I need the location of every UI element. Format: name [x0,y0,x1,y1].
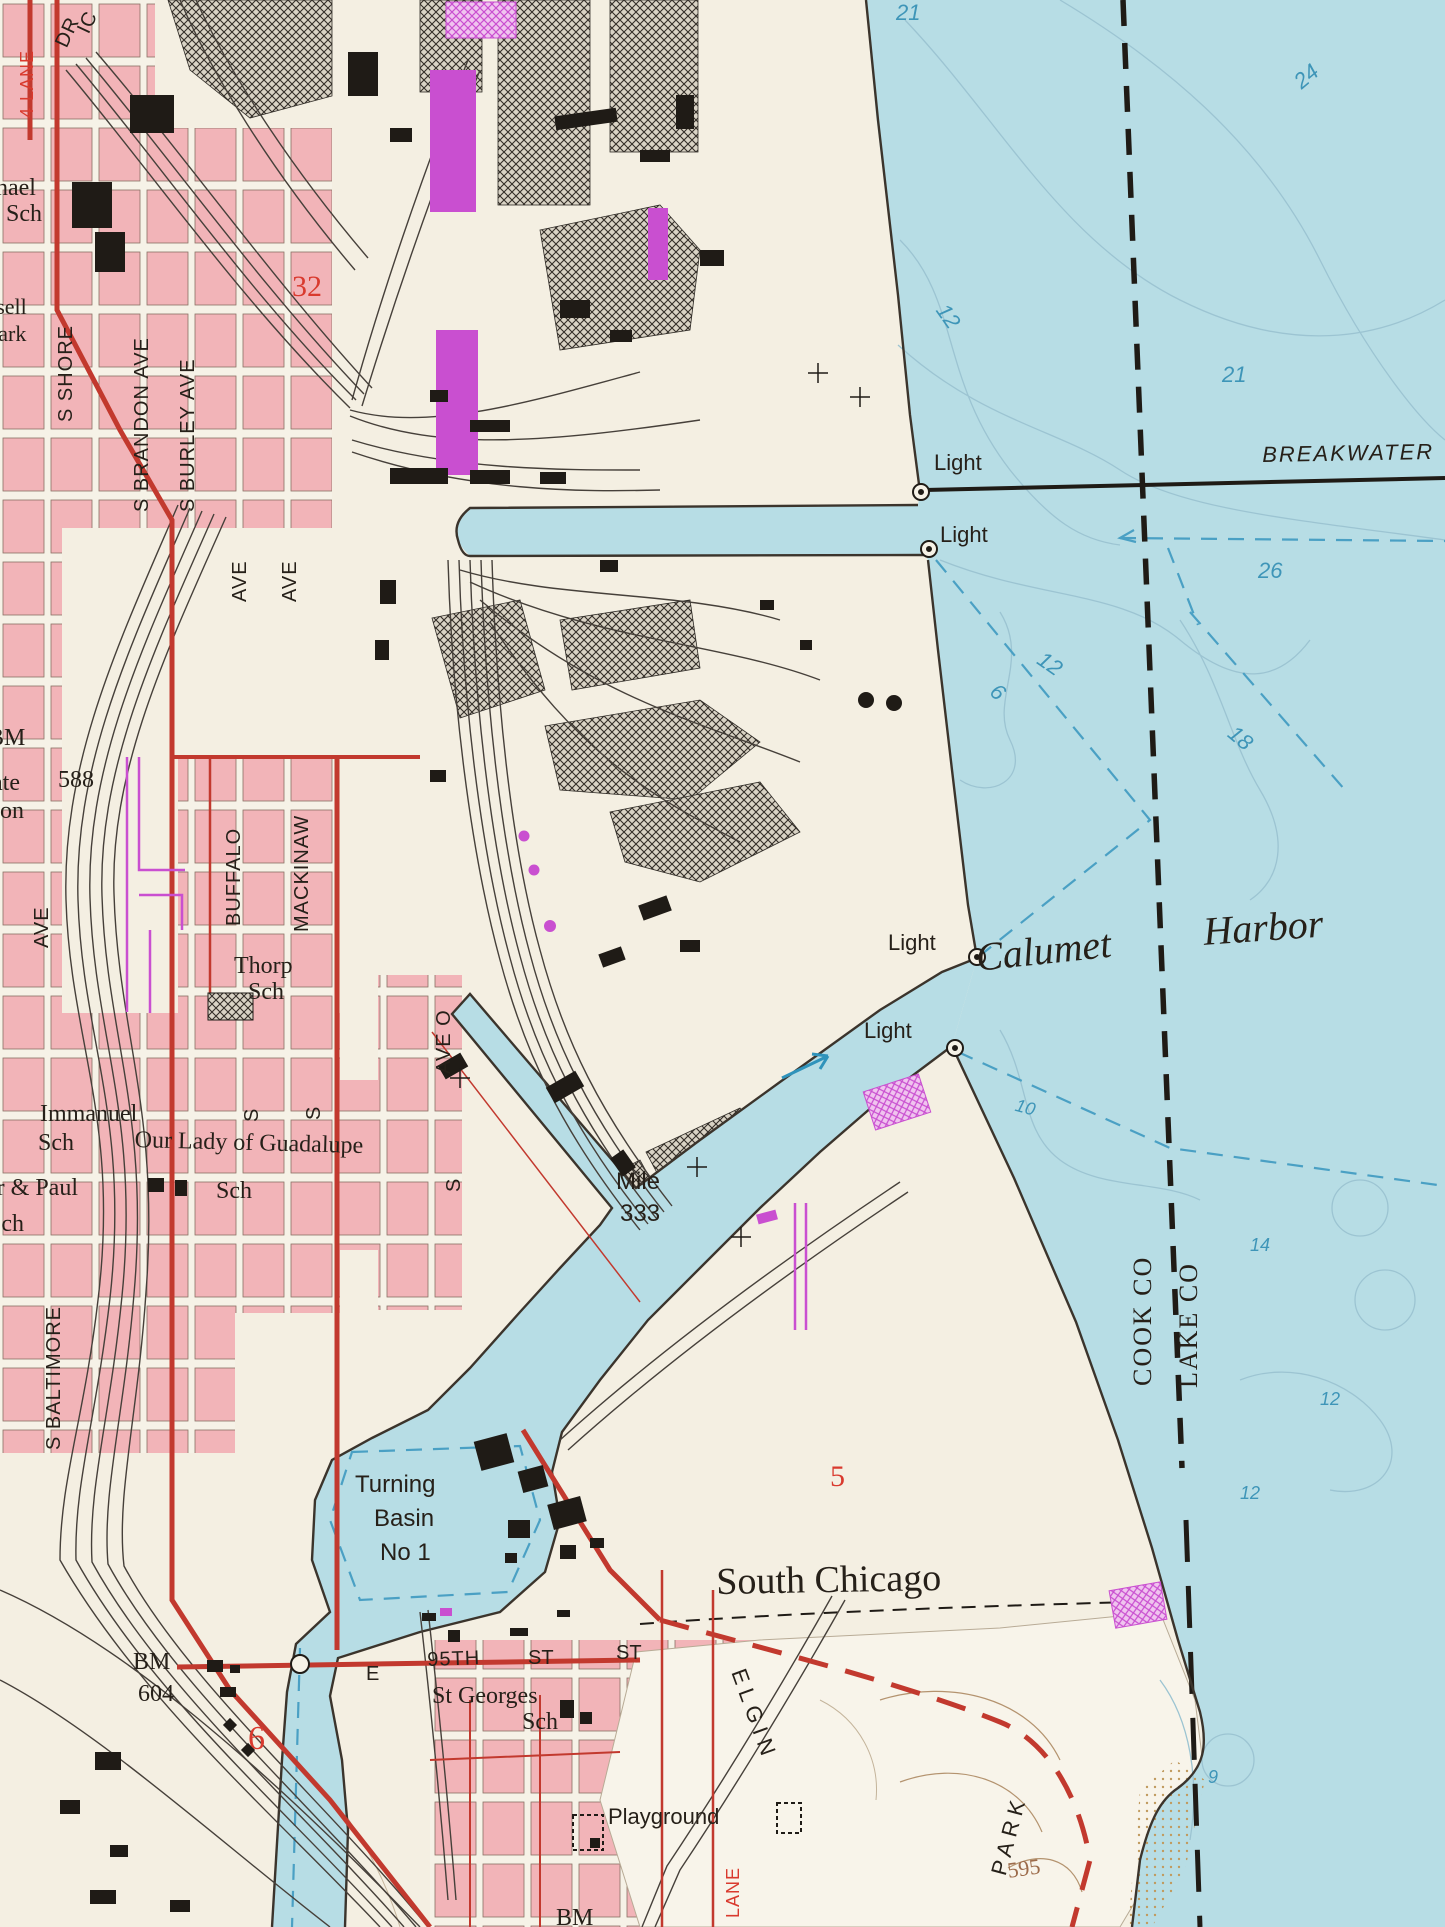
map-label-s-burley-ave: S BURLEY AVE [178,358,198,512]
map-label-depth-10: 10 [1013,1096,1037,1119]
map-label-calumet: Calumet [974,924,1113,978]
map-label-bm-588-bm: BM [0,726,25,750]
map-label-immanuel-sch: Sch [38,1131,74,1155]
topographic-map: 4 LANEDRICS SHORES BRANDON AVES BURLEY A… [0,0,1445,1927]
map-label-e-95th: 95TH [427,1648,481,1670]
map-label-s-1: S [444,1179,464,1192]
map-label-bm-bottom: BM [556,1906,593,1927]
map-label-st-georges: St Georges [432,1684,538,1708]
map-label-e-95th-e: E [366,1664,379,1684]
map-label-light-2: Light [940,524,988,546]
map-label-st-georges-sch: Sch [522,1710,558,1734]
map-label-guadalupe: Our Lady of Guadalupe [134,1128,363,1158]
map-label-depth-6: 6 [986,680,1010,705]
map-label-light-1: Light [934,452,982,474]
map-label-depth-21b: 21 [1222,364,1246,386]
map-label-elev-595: 595 [1006,1855,1042,1881]
map-label-depth-12d: 12 [1240,1484,1260,1502]
map-label-guadalupe-sch: Sch [216,1179,252,1203]
map-label-russell-park: Park [0,323,26,345]
map-label-ave-1: AVE [230,560,250,602]
map-label-ave-3: AVE [32,906,52,948]
map-label-four-lane: 4 LANE [18,50,36,118]
map-label-lake-co: LAKE CO [1176,1262,1202,1388]
map-label-bm-604-bm: BM [133,1650,170,1674]
map-label-depth-26: 26 [1258,560,1282,582]
map-label-thorp-sch: Sch [248,980,284,1004]
map-labels: 4 LANEDRICS SHORES BRANDON AVES BURLEY A… [0,0,1445,1927]
map-label-playground: Playground [608,1806,719,1828]
map-label-light-3: Light [888,932,936,954]
map-label-thorp: Thorp [234,954,293,978]
map-label-bm-588: 588 [58,768,94,792]
map-label-depth-18: 18 [1224,722,1257,755]
map-label-michael-sch-2: Sch [6,202,42,226]
map-label-sec-6: 6 [248,1722,265,1756]
map-label-peter-paul: er & Paul [0,1176,78,1200]
map-label-ate: ate [0,771,20,795]
map-label-mile-1: Mile [616,1170,660,1194]
map-label-sec-5: 5 [830,1462,845,1492]
map-label-depth-21a: 21 [896,2,920,24]
map-label-s-brandon-ave: S BRANDON AVE [132,337,152,512]
map-label-s-2: S [242,1109,262,1122]
map-label-s-baltimore: S BALTIMORE [44,1306,64,1450]
map-label-depth-14: 14 [1250,1236,1270,1254]
map-label-peter-paul-sch: Sch [0,1212,24,1236]
map-label-turning-1: Turning [355,1473,435,1497]
map-label-bm-604: 604 [138,1682,174,1706]
map-label-depth-12a: 12 [932,300,964,333]
map-label-elgin: ELGIN [727,1666,781,1764]
map-label-michael-sch-1: nael [0,176,36,200]
map-label-e-95th-st: ST [528,1648,554,1668]
map-label-depth-9: 9 [1208,1768,1218,1786]
map-label-s-shore: S SHORE [56,325,76,422]
map-label-depth-24: 24 [1290,60,1323,93]
map-label-depth-12c: 12 [1320,1390,1340,1408]
map-label-turning-3: No 1 [380,1541,431,1565]
map-label-cook-co: COOK CO [1130,1256,1156,1386]
map-label-ave-o: AVE O [434,1009,454,1074]
map-label-s-3: S [304,1107,324,1120]
map-label-harbor: Harbor [1202,904,1325,952]
map-label-immanuel: Immanuel [40,1102,137,1126]
map-label-south-chicago: South Chicago [716,1559,941,1601]
map-label-light-4: Light [864,1020,912,1042]
map-label-buffalo: BUFFALO [224,828,244,926]
map-label-russell: Russell [0,296,27,318]
map-label-breakwater: BREAKWATER [1262,441,1434,466]
map-label-depth-12b: 12 [1033,648,1066,680]
map-label-mackinaw: MACKINAW [292,815,312,932]
map-label-mile-2: 333 [620,1202,660,1226]
map-label-sec-32: 32 [292,272,322,302]
map-label-ave-2: AVE [280,560,300,602]
map-label-st-2: ST [616,1643,642,1663]
map-label-lane-red: LANE [724,1867,742,1918]
map-label-turning-2: Basin [374,1507,434,1531]
map-label-on: on [0,799,24,823]
